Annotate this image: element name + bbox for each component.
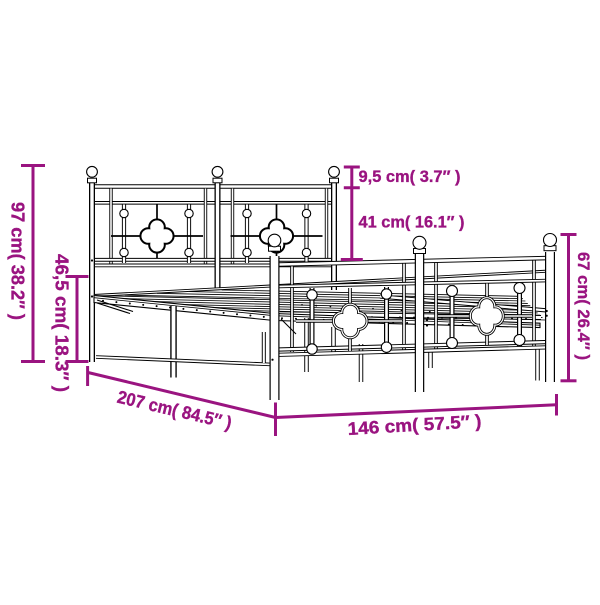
svg-text:9,5 cm( 3.7″ ): 9,5 cm( 3.7″ )	[359, 167, 461, 186]
svg-text:67 cm( 26.4″ ): 67 cm( 26.4″ )	[574, 252, 593, 360]
svg-text:46,5 cm( 18.3″ ): 46,5 cm( 18.3″ )	[52, 254, 72, 392]
svg-text:41 cm( 16.1″ ): 41 cm( 16.1″ )	[359, 213, 465, 232]
svg-text:97 cm( 38.2″ ): 97 cm( 38.2″ )	[8, 202, 28, 320]
